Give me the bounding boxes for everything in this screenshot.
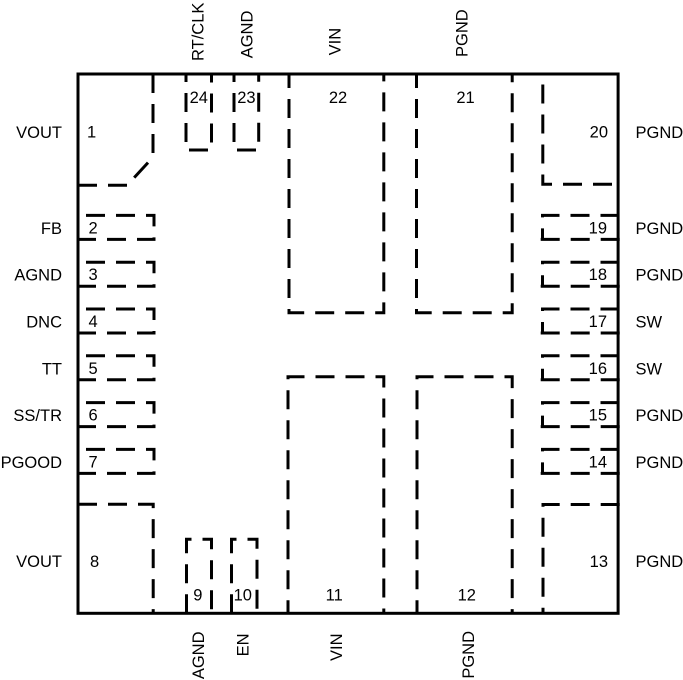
svg-text:FB: FB bbox=[41, 220, 62, 238]
svg-text:PGND: PGND bbox=[636, 267, 683, 285]
svg-text:PGND: PGND bbox=[636, 553, 683, 571]
svg-text:VOUT: VOUT bbox=[16, 124, 62, 142]
svg-text:24: 24 bbox=[190, 89, 208, 107]
svg-text:14: 14 bbox=[589, 453, 607, 471]
svg-text:21: 21 bbox=[456, 89, 474, 107]
svg-text:8: 8 bbox=[90, 553, 99, 571]
svg-text:18: 18 bbox=[589, 266, 607, 284]
svg-text:PGND: PGND bbox=[636, 454, 683, 472]
svg-text:PGND: PGND bbox=[454, 9, 472, 57]
svg-text:16: 16 bbox=[589, 360, 607, 378]
svg-text:VIN: VIN bbox=[328, 634, 346, 662]
svg-text:9: 9 bbox=[193, 587, 202, 605]
svg-text:10: 10 bbox=[234, 587, 252, 605]
svg-text:1: 1 bbox=[87, 124, 96, 142]
svg-text:12: 12 bbox=[458, 587, 476, 605]
svg-text:5: 5 bbox=[89, 360, 98, 378]
svg-text:EN: EN bbox=[234, 634, 252, 657]
svg-text:4: 4 bbox=[89, 313, 98, 331]
svg-text:PGND: PGND bbox=[636, 220, 683, 238]
svg-text:20: 20 bbox=[590, 124, 608, 142]
svg-text:SW: SW bbox=[636, 360, 663, 378]
svg-text:VIN: VIN bbox=[327, 28, 345, 56]
svg-text:3: 3 bbox=[89, 266, 98, 284]
svg-text:PGND: PGND bbox=[460, 631, 478, 679]
svg-text:PGOOD: PGOOD bbox=[1, 454, 63, 472]
svg-text:11: 11 bbox=[326, 587, 343, 605]
svg-text:22: 22 bbox=[329, 89, 347, 107]
svg-text:PGND: PGND bbox=[636, 407, 683, 425]
svg-text:AGND: AGND bbox=[14, 267, 62, 285]
svg-text:6: 6 bbox=[89, 407, 98, 425]
svg-text:7: 7 bbox=[89, 453, 98, 471]
svg-text:2: 2 bbox=[89, 219, 98, 237]
svg-text:15: 15 bbox=[589, 407, 607, 425]
svg-text:DNC: DNC bbox=[26, 314, 62, 332]
svg-text:17: 17 bbox=[589, 313, 607, 331]
svg-text:23: 23 bbox=[237, 89, 255, 107]
svg-text:RT/CLK: RT/CLK bbox=[189, 3, 207, 61]
svg-text:13: 13 bbox=[590, 553, 608, 571]
svg-text:TT: TT bbox=[42, 360, 62, 378]
svg-text:SW: SW bbox=[636, 314, 663, 332]
svg-text:AGND: AGND bbox=[190, 631, 208, 679]
svg-text:PGND: PGND bbox=[636, 124, 683, 142]
svg-text:AGND: AGND bbox=[239, 11, 257, 59]
svg-text:SS/TR: SS/TR bbox=[13, 407, 62, 425]
svg-text:19: 19 bbox=[589, 219, 607, 237]
svg-text:VOUT: VOUT bbox=[16, 553, 62, 571]
